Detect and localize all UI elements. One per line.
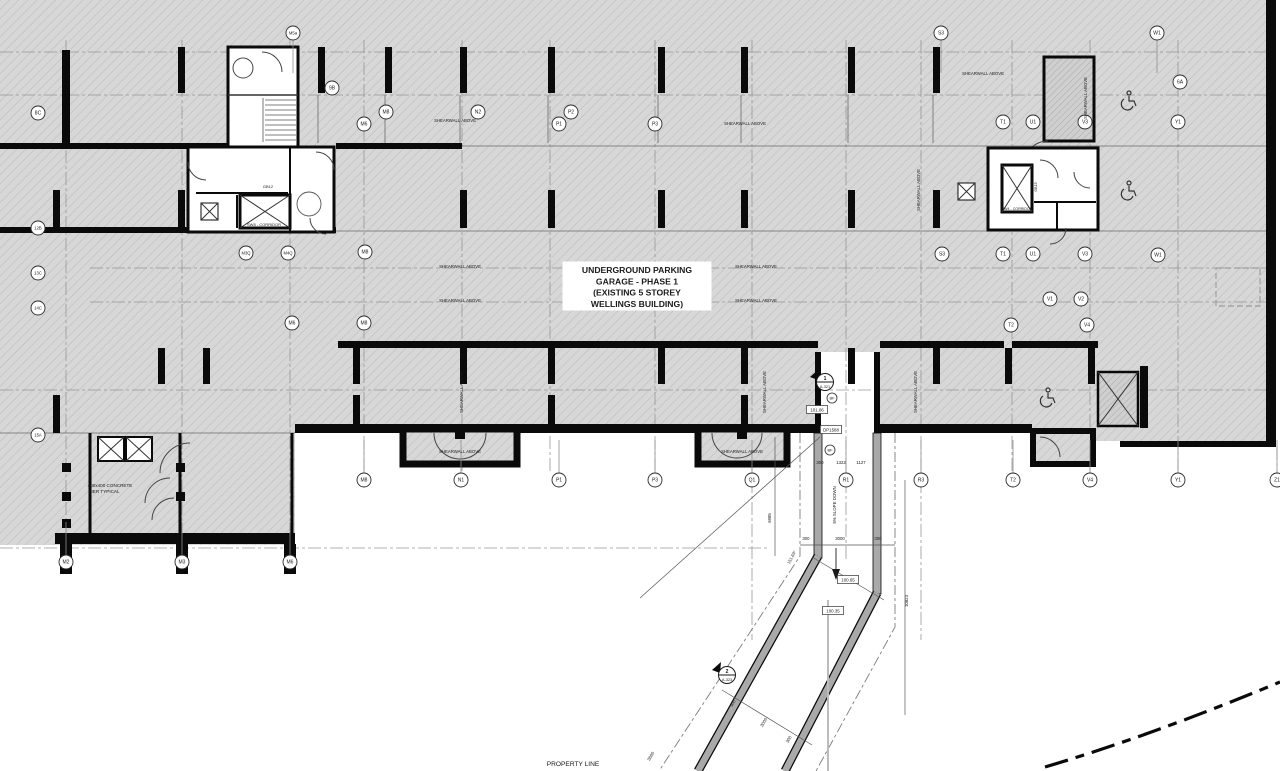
column-stub (933, 47, 940, 93)
property-line-curve (1045, 682, 1280, 767)
column-stub (658, 190, 665, 228)
slope-label: 5% SLOPE DOWN (832, 486, 837, 523)
grid-bubble-label: 6A (1177, 80, 1184, 86)
column-stub (353, 348, 360, 384)
column-stub (318, 47, 325, 93)
room-label: GB12 (263, 184, 274, 189)
column-stub (548, 348, 555, 384)
grid-bubble-label: M8 (383, 110, 390, 116)
grid-bubble-label: P3 (652, 478, 658, 484)
column-stub (1088, 348, 1095, 384)
grid-bubble-Y1: Y1 (1171, 440, 1185, 487)
grid-bubble-label: P3 (652, 122, 658, 128)
elevator-shaft (98, 437, 124, 461)
grid-bubble-label: N1 (458, 478, 465, 484)
grid-bubble-label: R1 (843, 478, 850, 484)
grid-bubble-label: U1 (1030, 252, 1037, 258)
property-line-label: PROPERTY LINE (547, 761, 600, 768)
dimension-text: 3000 (759, 716, 768, 727)
grid-bubble-label: Q1 (749, 478, 756, 484)
column-stub (548, 190, 555, 228)
floor-plan-drawing: M5aS3W19B6A8CM8N2P2M6P1P3T1U1V3Y112B13C1… (0, 0, 1280, 771)
grid-bubble-M6: M6 (357, 117, 371, 131)
grid-bubble-label: M3 (179, 560, 186, 566)
grid-bubble-label: M6 (287, 560, 294, 566)
shearwall-label: SHEARWALL ABOVE (735, 264, 777, 269)
grid-bubble-label: S3 (938, 31, 944, 37)
shearwall-label: SHEARWALL ABOVE (913, 371, 918, 413)
grid-bubble-T2: T2 (1006, 440, 1020, 487)
pier-note: 400x400 CONCRETE (88, 483, 133, 488)
plan-title-line: WELLINGS BUILDING) (591, 299, 683, 309)
column-stub (741, 47, 748, 93)
elevation-marker: DP1588 (823, 428, 839, 433)
bf-marker: BF (825, 445, 835, 455)
grid-bubble-label: V3 (1082, 120, 1088, 126)
grid-bubble-Y1: Y1 (1171, 115, 1185, 129)
section-sheet: A-321 (820, 385, 830, 389)
column-stub (353, 395, 360, 433)
dimension-text: 6985 (767, 513, 772, 523)
grid-bubble-label: W1 (1154, 253, 1162, 259)
bf-marker: BF (827, 393, 837, 403)
grid-bubble-label: M6 (289, 321, 296, 327)
section-marker: 2A-323 (712, 662, 736, 684)
plan-title-line: (EXISTING 5 STOREY (593, 288, 681, 298)
grid-bubble-label: M6 (361, 122, 368, 128)
shearwall-label: SHEARWALL ABOVE (439, 449, 481, 454)
grid-bubble-T1: T1 (996, 247, 1010, 261)
grid-bubble-label: V4 (1087, 478, 1093, 484)
grid-bubble-T2: T2 (1004, 318, 1018, 332)
shearwall-label: SHEARWALL ABOVE (962, 71, 1004, 76)
column-stub (1005, 348, 1012, 384)
grid-bubble-label: 8C (35, 111, 42, 117)
room-label: GB15 (1034, 182, 1038, 191)
column-stub (460, 190, 467, 228)
grid-bubble-M8: M8 (357, 316, 371, 330)
column-stub (741, 348, 748, 384)
section-number: 1 (824, 376, 827, 382)
angle-label: 151.69° (786, 549, 797, 564)
elevator-shaft (1002, 165, 1032, 212)
grid-bubble-label: M4Q (283, 251, 293, 256)
plan-title-line: GARAGE - PHASE 1 (596, 276, 678, 286)
ramp-dimension-lines (640, 437, 905, 745)
grid-bubble-V3: V3 (1078, 247, 1092, 261)
bf-marker-label: BF (827, 448, 833, 453)
dimension-text: 1322 (836, 460, 846, 465)
grid-bubble-9B: 9B (325, 81, 339, 95)
column-stub (385, 47, 392, 93)
dimension-text: 3885 (646, 750, 655, 761)
column-stub (178, 47, 185, 93)
grid-bubble-label: V4 (1084, 323, 1090, 329)
grid-bubble-13C: 13C (31, 266, 45, 280)
column-stub (933, 348, 940, 384)
grid-bubble-label: P1 (556, 478, 562, 484)
grid-bubble-15A: 15A (31, 428, 45, 442)
column-stub (848, 348, 855, 384)
elevator-shaft (126, 437, 152, 461)
grid-bubble-P3: P3 (648, 117, 662, 131)
pier-note: PIER TYPICAL (88, 489, 120, 494)
grid-bubble-label: W1 (1153, 31, 1161, 37)
dimension-text: 300 (785, 734, 793, 743)
grid-bubble-M3Q: M3Q (239, 246, 253, 260)
ramp (640, 433, 905, 771)
grid-bubble-label: 12B (34, 226, 42, 231)
grid-bubble-Z1: Z1 (1270, 440, 1280, 487)
grid-bubble-R3: R3 (914, 440, 928, 487)
grid-bubble-label: Y1 (1175, 478, 1181, 484)
grid-bubble-label: P2 (568, 110, 574, 116)
grid-bubble-T1: T1 (996, 115, 1010, 129)
shaft-bottom-right (1098, 372, 1138, 426)
grid-bubble-V2: V2 (1074, 292, 1088, 306)
grid-bubble-label: T1 (1000, 120, 1006, 126)
grid-bubble-M8: M8 (357, 440, 371, 487)
column-stub (158, 348, 165, 384)
dimension-text: 1127 (856, 460, 866, 465)
plan-title-line: UNDERGROUND PARKING (582, 265, 692, 275)
section-number: 2 (726, 669, 729, 675)
grid-bubble-label: S3 (939, 252, 945, 258)
shearwall-label: SHEARWALL ABOVE (439, 264, 481, 269)
floor-plan-canvas: M5aS3W19B6A8CM8N2P2M6P1P3T1U1V3Y112B13C1… (0, 0, 1280, 771)
dimension-text: 300 (874, 536, 882, 541)
elevation-marker: 100.35 (826, 609, 840, 614)
grid-bubble-M8: M8 (379, 105, 393, 119)
bf-marker-label: BF (829, 396, 835, 401)
column-stub (741, 190, 748, 228)
grid-bubble-S3: S3 (935, 247, 949, 261)
grid-bubble-label: V3 (1082, 252, 1088, 258)
column-stub (53, 395, 60, 433)
grid-bubble-V1: V1 (1043, 292, 1057, 306)
grid-bubble-label: T1 (1000, 252, 1006, 258)
crossed-box-symbol (201, 203, 218, 220)
grid-bubble-label: V2 (1078, 297, 1084, 303)
grid-bubble-M6: M6 (285, 316, 299, 330)
grid-bubble-label: N2 (475, 110, 482, 116)
grid-bubble-8C: 8C (31, 106, 45, 120)
shearwall-label: SHEARWALL ABOVE (439, 298, 481, 303)
grid-bubble-label: M8 (362, 250, 369, 256)
dimension-text: 300 (802, 536, 810, 541)
grid-bubble-label: M8 (361, 321, 368, 327)
stair-treads (263, 98, 296, 142)
ramp-setback-lines (659, 433, 895, 771)
grid-bubble-label: P1 (556, 122, 562, 128)
column-stub (933, 190, 940, 228)
grid-bubble-label: T2 (1010, 478, 1016, 484)
grid-bubble-14C: 14C (31, 301, 45, 315)
column-stub (53, 190, 60, 228)
grid-bubble-U1: U1 (1026, 115, 1040, 129)
grid-bubble-label: V1 (1047, 297, 1053, 303)
grid-bubble-P1: P1 (552, 117, 566, 131)
grid-bubble-V4: V4 (1080, 318, 1094, 332)
shearwall-label: SHEARWALL ABOVE (434, 118, 476, 123)
grid-bubble-P2: P2 (564, 105, 578, 119)
shearwall-label: SHEARWALL ABOVE (735, 298, 777, 303)
grid-bubble-label: T2 (1008, 323, 1014, 329)
shearwall-label: SHEARWALL ABOVE (721, 449, 763, 454)
column-stub (203, 348, 210, 384)
corridor-label: SW4 - CORRIDOR (1002, 207, 1033, 211)
grid-bubble-label: R3 (918, 478, 925, 484)
elevation-marker: 101.06 (810, 408, 824, 413)
grid-bubble-label: M5a (289, 31, 298, 36)
dimension-text: 10823 (904, 594, 909, 607)
grid-bubble-label: M2 (63, 560, 70, 566)
shearwall-label: SHEARWALL ABOVE (1083, 77, 1088, 119)
grid-bubble-label: 14C (34, 306, 42, 311)
column-stub (848, 190, 855, 228)
shearwall-label: SHEARWALL ABOVE (724, 121, 766, 126)
grid-bubble-12B: 12B (31, 221, 45, 235)
grid-bubble-P1: P1 (552, 440, 566, 487)
column-stub (658, 47, 665, 93)
column-stub (848, 47, 855, 93)
grid-bubble-W1: W1 (1151, 248, 1165, 262)
grid-bubble-P3: P3 (648, 440, 662, 487)
grid-bubble-label: M3Q (241, 251, 251, 256)
grid-bubble-label: 15A (34, 433, 42, 438)
column-stub (460, 47, 467, 93)
column-stub (548, 47, 555, 93)
grid-bubble-U1: U1 (1026, 247, 1040, 261)
corridor-label: SW8 - CORRIDOR (247, 222, 281, 227)
grid-bubble-label: M8 (361, 478, 368, 484)
shearwall-label: SHEARWALL ABOVE (916, 169, 921, 211)
grid-bubble-label: Y1 (1175, 120, 1181, 126)
crossed-box-symbol (958, 183, 975, 200)
section-sheet: A-323 (722, 678, 732, 682)
dimension-text: 3000 (835, 536, 845, 541)
elevation-marker: 100.65 (841, 578, 855, 583)
grid-bubble-M8: M8 (358, 245, 372, 259)
grid-bubble-6A: 6A (1173, 75, 1187, 89)
grid-bubble-N2: N2 (471, 105, 485, 119)
grid-bubble-label: 9B (329, 86, 336, 92)
grid-bubble-M4Q: M4Q (281, 246, 295, 260)
dimension-text: 300 (816, 460, 824, 465)
column-stub (178, 190, 185, 228)
shearwall-label: SHEARWALL ABOVE (762, 371, 767, 413)
column-stub (548, 395, 555, 433)
grid-bubble-label: Z1 (1274, 478, 1280, 484)
shearwall-label: SHEARWALL ABOVE (459, 371, 464, 413)
column-stub (658, 348, 665, 384)
grid-bubble-label: U1 (1030, 120, 1037, 126)
grid-bubble-label: 13C (34, 271, 42, 276)
